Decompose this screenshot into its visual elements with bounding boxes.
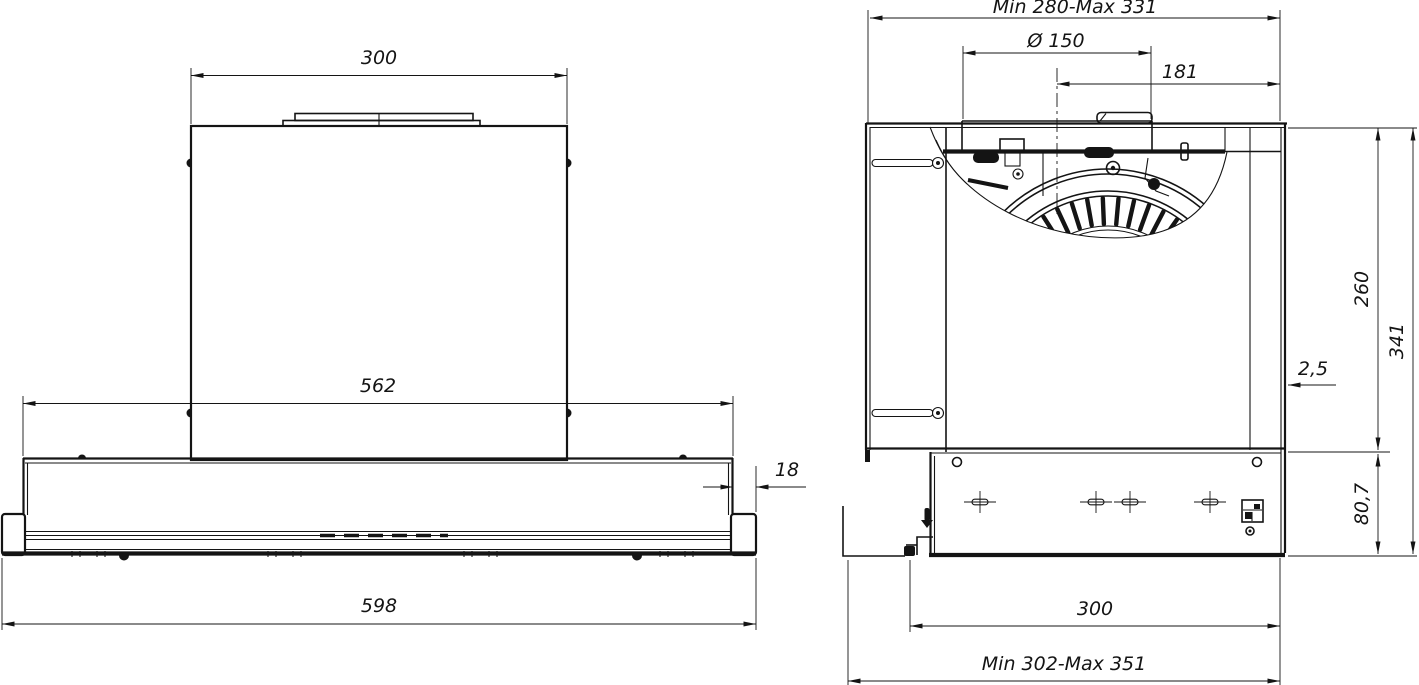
screw-bump [567, 159, 572, 168]
chimney-duct [187, 114, 572, 461]
dim-depth-range: Min 280-Max 331 [868, 0, 1280, 123]
dim-label-mounting-width: 300 [1077, 598, 1113, 620]
dim-label-lower-height: 80,7 [1351, 483, 1373, 525]
screw-hole [953, 458, 962, 467]
rating-plate-icon [1242, 500, 1263, 522]
dim-label-depth-range: Min 280-Max 331 [993, 0, 1157, 18]
rear-tab [865, 450, 870, 462]
dim-label-visor-offset: 18 [775, 459, 799, 481]
screw-hole [1253, 458, 1262, 467]
dim-label-chimney-width: 300 [361, 47, 397, 69]
side-view [843, 68, 1287, 556]
cabinet-contour [843, 506, 905, 556]
dim-total-width: 598 [2, 558, 756, 630]
lower-section [843, 452, 1285, 556]
dim-overall-depth-range: Min 302-Max 351 [848, 560, 1280, 685]
foot-bump [119, 556, 129, 561]
dim-label-overall-height: 341 [1386, 323, 1408, 359]
dim-label-duct-diameter: Ø 150 [1026, 30, 1084, 52]
dim-label-body-width: 562 [360, 375, 396, 397]
dim-chimney-width: 300 [191, 47, 567, 124]
screw-bump [679, 455, 687, 459]
dim-label-total-width: 598 [361, 595, 397, 617]
bracket-screw [925, 508, 930, 521]
dim-duct-offset: 181 [1057, 61, 1280, 84]
dim-front-gap: 2,5 [1288, 358, 1336, 385]
dim-label-duct-offset: 181 [1162, 61, 1198, 83]
dim-body-height: 260 [1288, 128, 1417, 452]
side-view-dimensions: Min 280-Max 331 Ø 150 181 260 80,7 341 [848, 0, 1417, 685]
dim-label-body-height: 260 [1351, 271, 1373, 307]
bracket-peg [904, 546, 915, 556]
screw-bump [187, 159, 191, 168]
mounting-rods [872, 158, 944, 419]
mounting-slots [964, 491, 1226, 513]
screw-bump [78, 455, 86, 459]
side-body-outline [865, 123, 1287, 553]
hood-dimension-drawing: 300 562 18 598 [0, 0, 1419, 685]
technical-drawing-page: 300 562 18 598 [0, 0, 1419, 685]
dim-overall-height: 341 [1386, 128, 1413, 554]
motor-details [968, 139, 1188, 196]
dim-label-front-gap: 2,5 [1298, 358, 1328, 380]
foot-bump [632, 556, 642, 561]
dim-lower-height: 80,7 [1288, 454, 1417, 556]
screw-bump [567, 409, 572, 418]
dim-label-overall-depth-range: Min 302-Max 351 [982, 653, 1146, 675]
front-view [2, 114, 756, 561]
dim-visor-offset: 18 [703, 459, 806, 512]
dim-body-width: 562 [23, 375, 733, 456]
fan-blades [991, 198, 1226, 302]
visor-panel [2, 514, 756, 561]
screw-bump [187, 409, 191, 418]
canopy-body [23, 455, 733, 516]
wall-bracket [904, 508, 933, 556]
front-view-dimensions: 300 562 18 598 [2, 47, 806, 630]
blower-wheel [959, 169, 1257, 467]
